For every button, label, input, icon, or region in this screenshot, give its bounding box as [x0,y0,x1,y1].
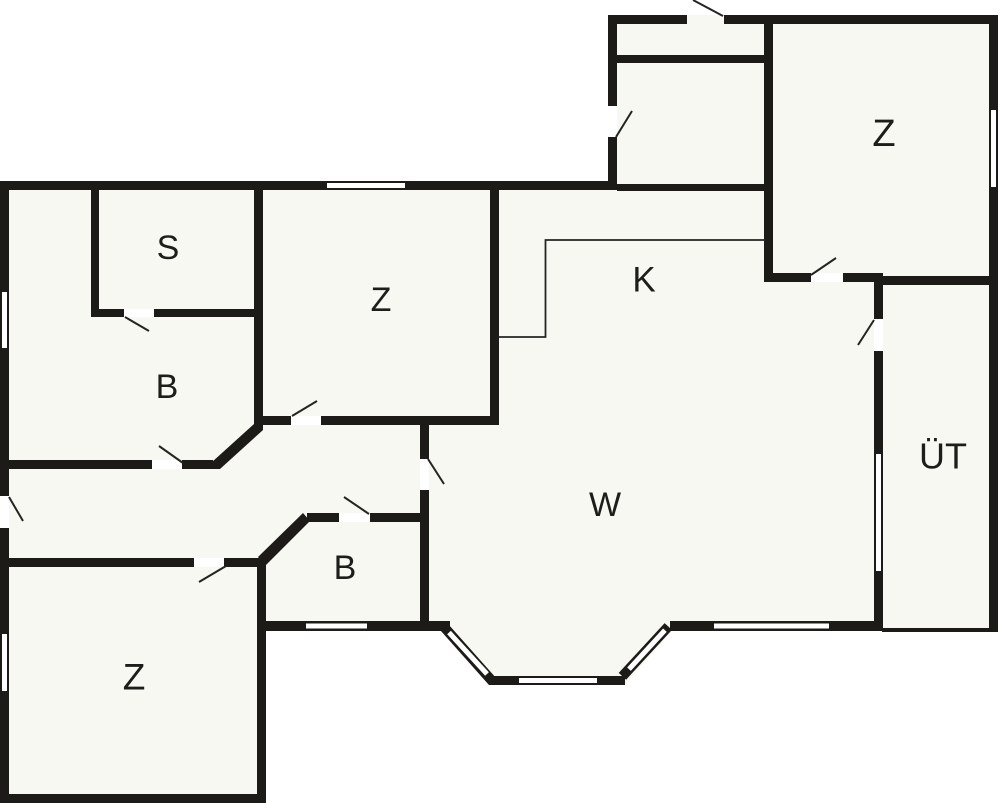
svg-text:Z: Z [371,281,392,319]
svg-text:ÜT: ÜT [919,436,967,477]
svg-text:Z: Z [872,113,895,155]
svg-text:B: B [156,368,179,406]
svg-text:W: W [589,486,621,524]
svg-text:S: S [157,229,180,267]
svg-text:Z: Z [123,657,146,698]
svg-text:B: B [334,549,357,587]
svg-text:K: K [632,261,655,300]
